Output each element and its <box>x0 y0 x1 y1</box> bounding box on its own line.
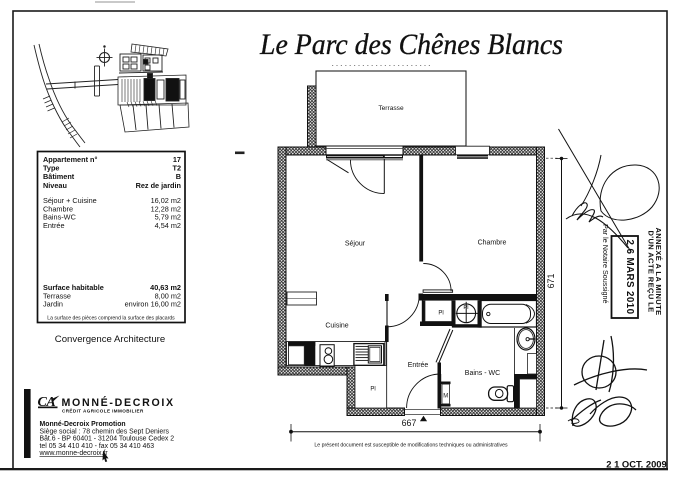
svg-text:Monné-Decroix Promotion: Monné-Decroix Promotion <box>40 421 126 428</box>
svg-text:2 1 OCT. 2009: 2 1 OCT. 2009 <box>606 459 666 470</box>
svg-text:Niveau: Niveau <box>43 181 67 190</box>
svg-text:Par le Notaire Soussigné: Par le Notaire Soussigné <box>601 224 610 304</box>
svg-text:D'UN ACTE REÇU LE: D'UN ACTE REÇU LE <box>647 230 656 312</box>
svg-text:Pl: Pl <box>370 387 375 393</box>
svg-text:Cuisine: Cuisine <box>325 323 348 330</box>
svg-text:MONNÉ-DECROIX: MONNÉ-DECROIX <box>62 396 175 409</box>
svg-text:4,54 m2: 4,54 m2 <box>155 221 181 230</box>
svg-text:Séjour: Séjour <box>345 241 366 248</box>
svg-text:671: 671 <box>546 274 556 289</box>
svg-text:Terrasse: Terrasse <box>378 105 404 112</box>
svg-text:2 6 MARS 2010: 2 6 MARS 2010 <box>624 240 635 315</box>
svg-text:Jardin: Jardin <box>43 300 63 309</box>
svg-text:Entrée: Entrée <box>408 362 429 369</box>
svg-text:Convergence Architecture: Convergence Architecture <box>55 334 165 345</box>
svg-text:Pl: Pl <box>438 311 443 317</box>
svg-text:Rez de jardin: Rez de jardin <box>136 181 181 190</box>
svg-text:CRÉDIT AGRICOLE IMMOBILIER: CRÉDIT AGRICOLE IMMOBILIER <box>62 406 144 413</box>
svg-text:environ 16,00 m2: environ 16,00 m2 <box>125 300 181 309</box>
svg-text:Le Parc des Chênes Blancs: Le Parc des Chênes Blancs <box>259 28 563 61</box>
svg-text:Bât.6 - BP 60401 - 31204 Toulo: Bât.6 - BP 60401 - 31204 Toulouse Cedex … <box>40 436 175 443</box>
svg-text:Bains - WC: Bains - WC <box>465 370 500 377</box>
svg-text:667: 667 <box>402 418 417 428</box>
svg-text:M: M <box>443 394 448 400</box>
svg-text:tel 05 34 410 410 - fax 05 34: tel 05 34 410 410 - fax 05 34 410 463 <box>40 443 155 450</box>
svg-text:Chambre: Chambre <box>478 240 507 247</box>
svg-text:www.monne-decroix.fr: www.monne-decroix.fr <box>39 450 109 457</box>
svg-text:Siège social : 78 chemin des S: Siège social : 78 chemin des Sept Denier… <box>40 428 170 435</box>
svg-text:La surface des pièces comprend: La surface des pièces comprend la surfac… <box>47 316 175 322</box>
svg-text:Entrée: Entrée <box>43 221 65 230</box>
svg-text:Le présent document est suscep: Le présent document est susceptible de m… <box>314 443 508 449</box>
svg-text:Pl: Pl <box>463 305 468 311</box>
